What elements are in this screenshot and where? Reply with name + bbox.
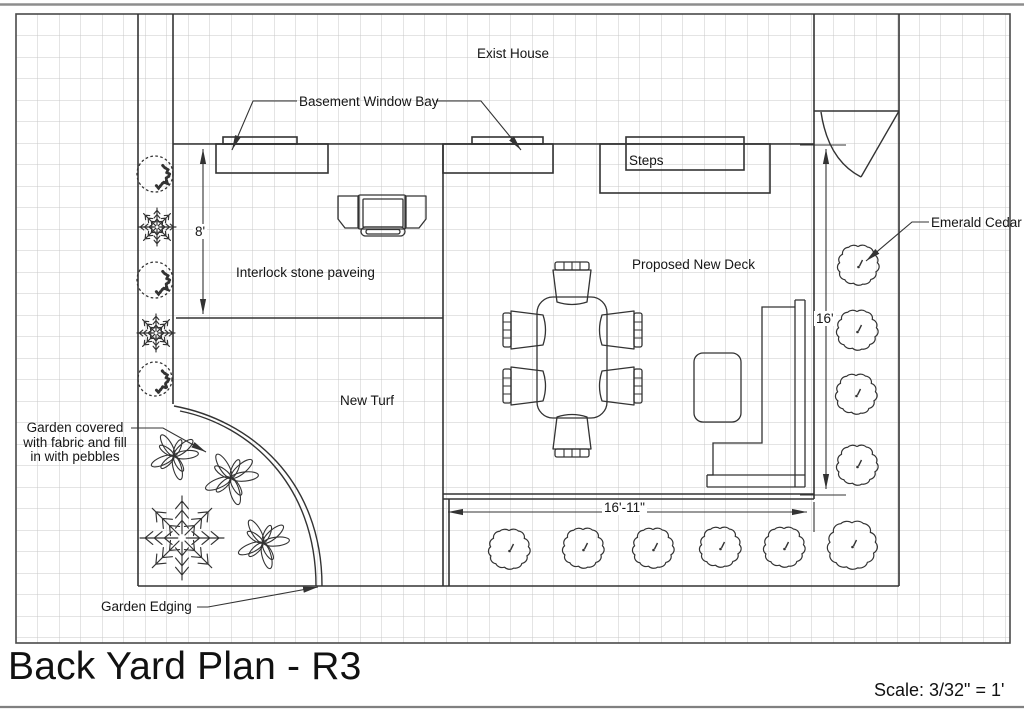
dim-text-16-11: 16'-11" xyxy=(602,500,647,515)
grid-background xyxy=(16,14,1010,643)
garden-note-line3: in with pebbles xyxy=(30,449,119,464)
garden-note-line2: with fabric and fill xyxy=(23,435,127,450)
dim-text-8ft: 8' xyxy=(193,224,207,239)
label-new-turf: New Turf xyxy=(340,393,394,408)
label-basement-window-bay: Basement Window Bay xyxy=(299,94,439,109)
backyard-plan-sheet: Exist House Basement Window Bay Steps In… xyxy=(0,0,1024,713)
sheet-title: Back Yard Plan - R3 xyxy=(8,659,362,674)
label-garden-edging: Garden Edging xyxy=(101,599,192,614)
label-exist-house: Exist House xyxy=(477,46,549,61)
label-interlock-paving: Interlock stone paveing xyxy=(236,265,375,280)
label-emerald-cedar: Emerald Cedar xyxy=(931,215,1022,230)
dim-text-16ft: 16' xyxy=(814,311,836,326)
label-proposed-deck: Proposed New Deck xyxy=(632,257,755,272)
sheet-scale: Scale: 3/32" = 1' xyxy=(874,683,1004,698)
label-garden-note: Garden covered with fabric and fill in w… xyxy=(18,421,132,465)
label-steps: Steps xyxy=(629,153,664,168)
garden-note-line1: Garden covered xyxy=(27,420,124,435)
